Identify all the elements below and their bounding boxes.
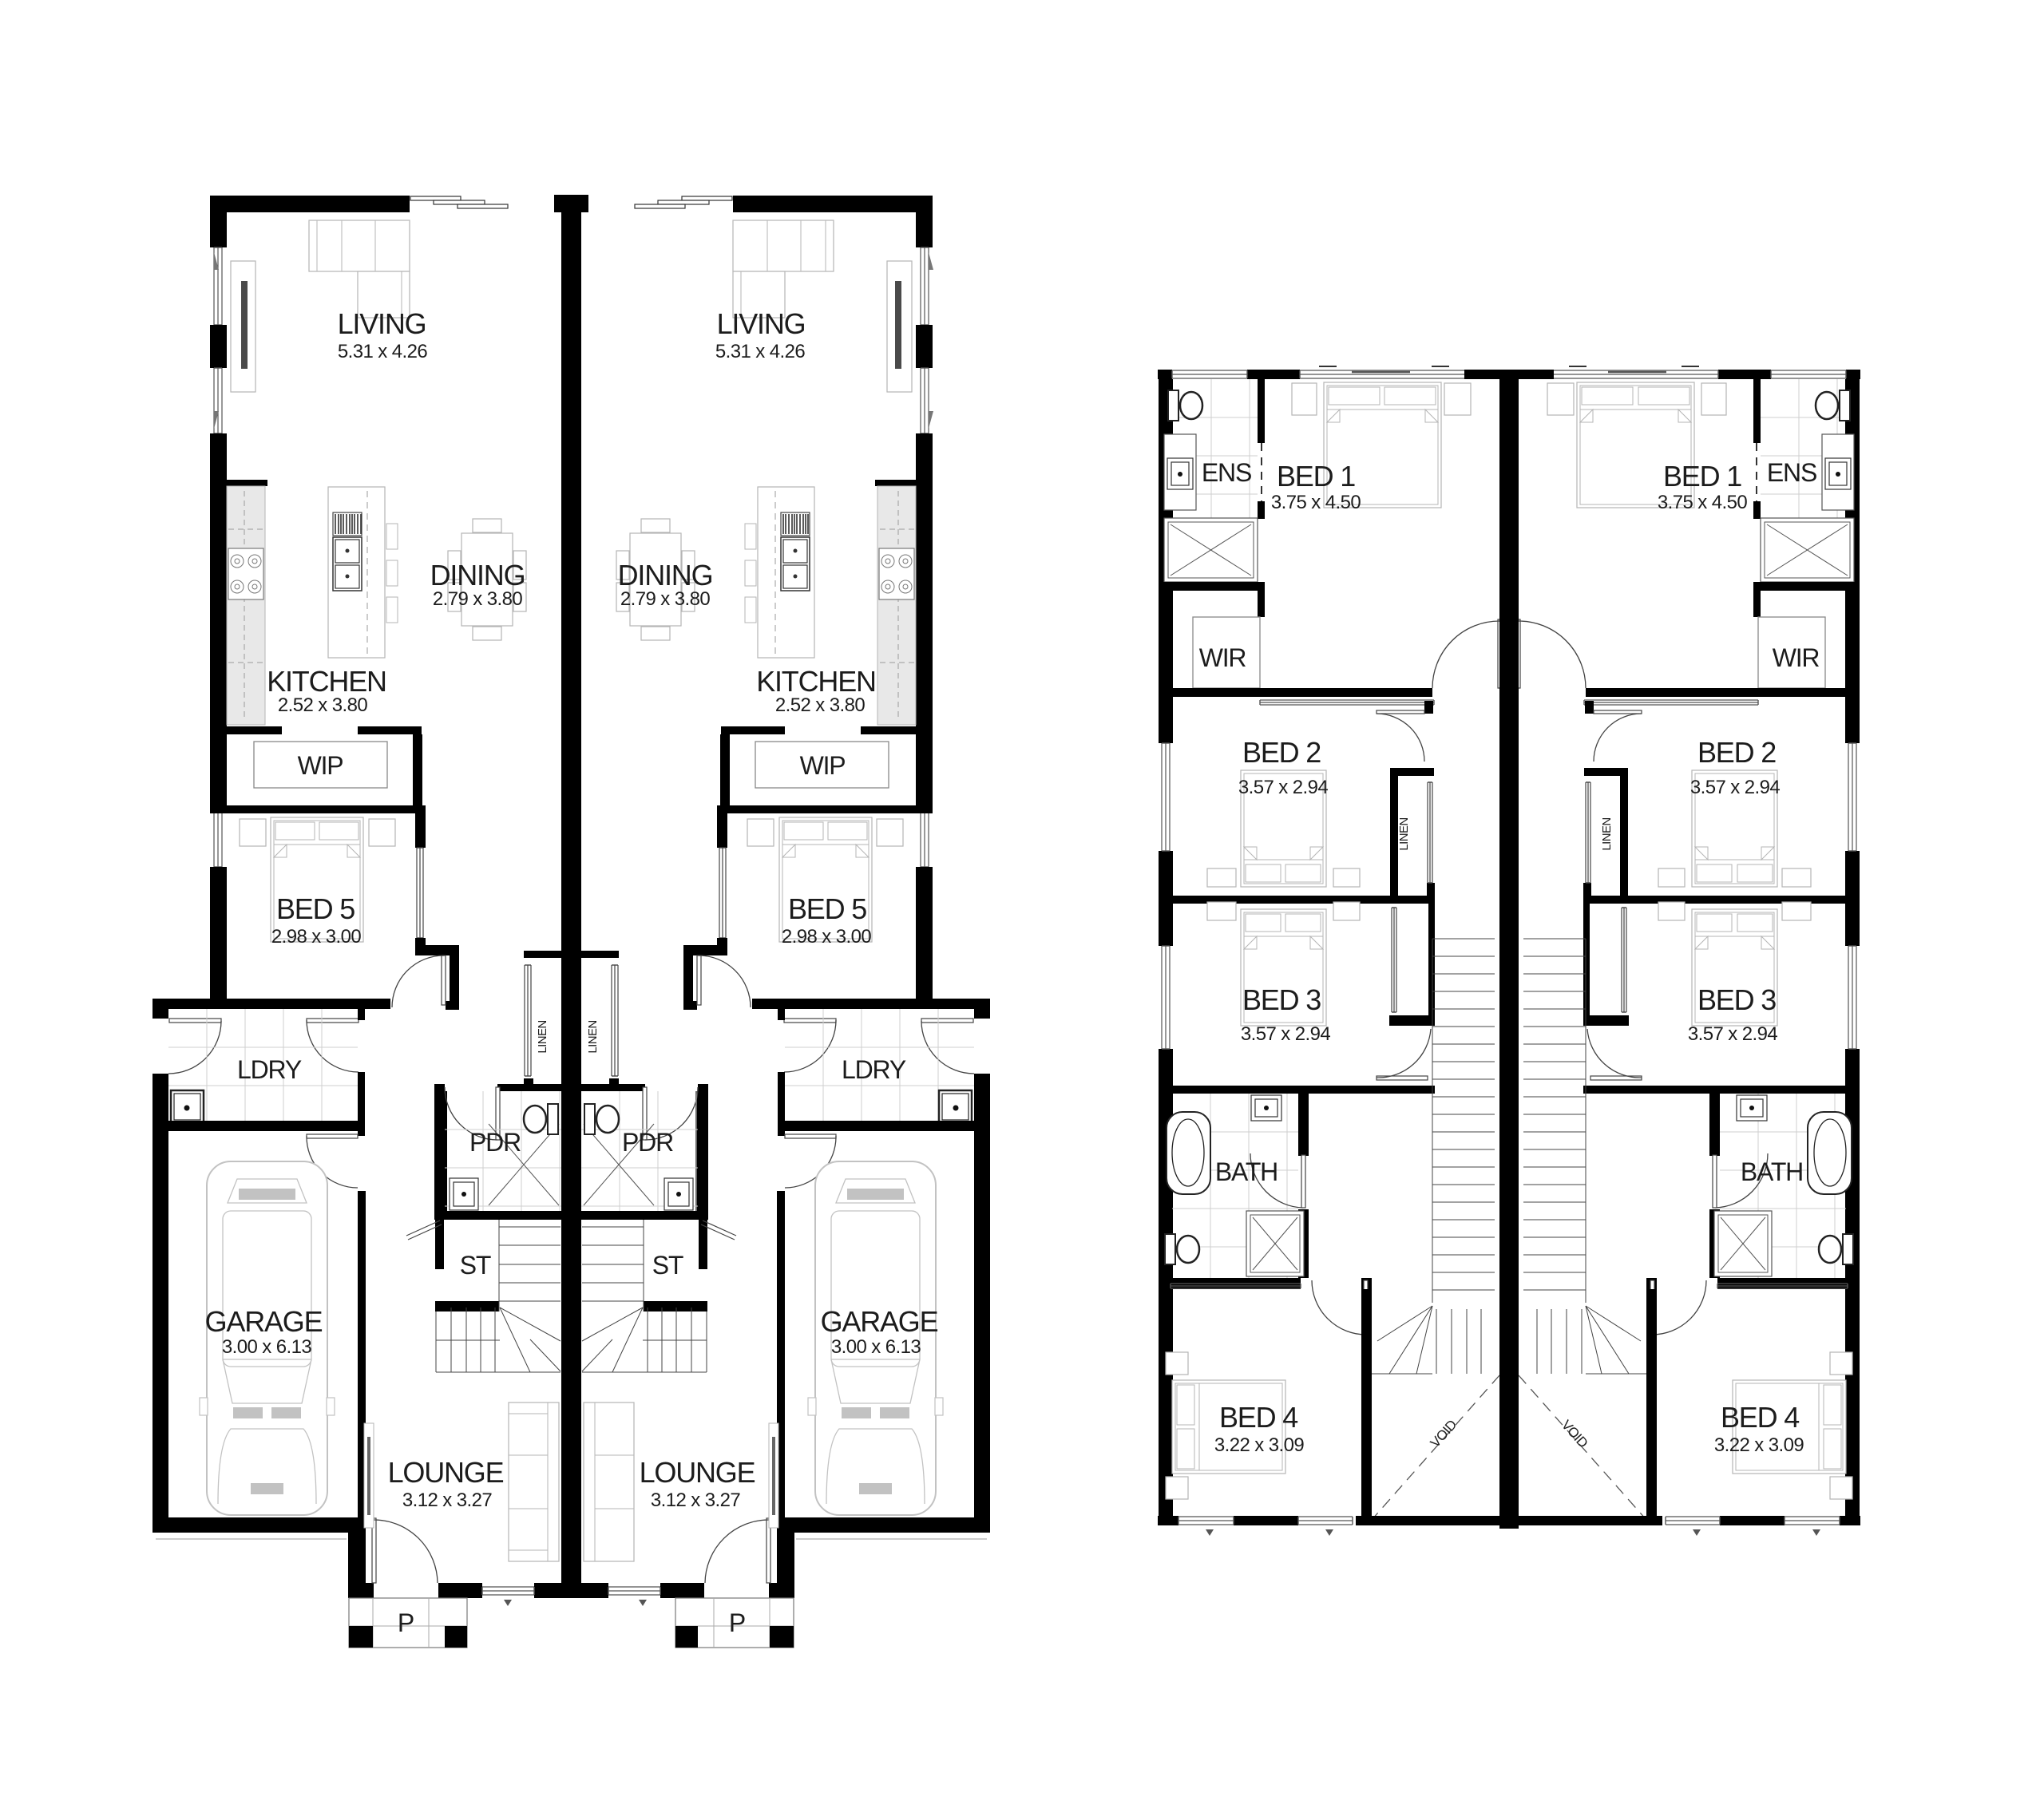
svg-text:BED 1: BED 1 [1277,460,1355,493]
svg-text:BED 2: BED 2 [1242,736,1321,769]
svg-text:3.75 x 4.50: 3.75 x 4.50 [1658,492,1747,513]
svg-text:WIP: WIP [298,751,343,780]
svg-text:DINING: DINING [430,559,525,591]
svg-text:BATH: BATH [1741,1157,1803,1186]
svg-text:BED 5: BED 5 [276,892,355,925]
svg-text:GARAGE: GARAGE [821,1305,938,1338]
svg-text:3.00 x 6.13: 3.00 x 6.13 [222,1336,311,1358]
svg-text:3.12 x 3.27: 3.12 x 3.27 [402,1490,492,1511]
svg-text:3.57 x 2.94: 3.57 x 2.94 [1238,777,1328,798]
svg-text:3.00 x 6.13: 3.00 x 6.13 [831,1336,921,1358]
svg-text:BED 5: BED 5 [788,892,866,925]
svg-text:LDRY: LDRY [237,1055,302,1084]
svg-text:3.75 x 4.50: 3.75 x 4.50 [1271,492,1361,513]
svg-text:3.57 x 2.94: 3.57 x 2.94 [1241,1023,1330,1045]
svg-text:P: P [729,1608,745,1637]
svg-text:LINEN: LINEN [1600,817,1614,850]
svg-text:ENS: ENS [1202,458,1251,487]
svg-text:3.12 x 3.27: 3.12 x 3.27 [651,1490,740,1511]
svg-text:ST: ST [460,1251,491,1280]
svg-text:2.52 x 3.80: 2.52 x 3.80 [775,694,865,716]
svg-text:GARAGE: GARAGE [205,1305,323,1338]
svg-text:ENS: ENS [1767,458,1816,487]
svg-text:WIP: WIP [800,751,846,780]
svg-text:3.57 x 2.94: 3.57 x 2.94 [1688,1023,1777,1045]
svg-text:DINING: DINING [618,559,713,591]
svg-text:KITCHEN: KITCHEN [267,665,386,698]
svg-text:BED 3: BED 3 [1242,983,1321,1016]
svg-text:2.79 x 3.80: 2.79 x 3.80 [433,588,522,610]
svg-text:LOUNGE: LOUNGE [640,1456,755,1489]
svg-text:BED 4: BED 4 [1219,1401,1297,1434]
svg-text:BED 3: BED 3 [1697,983,1776,1016]
svg-text:2.79 x 3.80: 2.79 x 3.80 [620,588,710,610]
svg-text:LOUNGE: LOUNGE [388,1456,504,1489]
svg-text:WIR: WIR [1199,643,1246,672]
svg-text:3.22 x 3.09: 3.22 x 3.09 [1714,1434,1804,1456]
svg-text:3.22 x 3.09: 3.22 x 3.09 [1214,1434,1304,1456]
svg-text:BED 1: BED 1 [1663,460,1741,493]
svg-text:ST: ST [652,1251,683,1280]
svg-text:LDRY: LDRY [842,1055,906,1084]
svg-text:P: P [398,1608,414,1637]
svg-text:BED 4: BED 4 [1721,1401,1799,1434]
svg-text:PDR: PDR [622,1128,673,1157]
svg-text:BATH: BATH [1215,1157,1277,1186]
svg-text:PDR: PDR [469,1128,521,1157]
svg-text:3.57 x 2.94: 3.57 x 2.94 [1690,777,1780,798]
svg-text:BED 2: BED 2 [1697,736,1776,769]
svg-text:LINEN: LINEN [586,1020,600,1053]
svg-text:LIVING: LIVING [338,307,426,340]
svg-text:5.31 x 4.26: 5.31 x 4.26 [715,341,805,362]
svg-text:2.98 x 3.00: 2.98 x 3.00 [782,926,871,948]
svg-text:5.31 x 4.26: 5.31 x 4.26 [338,341,427,362]
svg-text:LIVING: LIVING [717,307,806,340]
svg-text:LINEN: LINEN [536,1020,549,1053]
svg-text:2.52 x 3.80: 2.52 x 3.80 [278,694,367,716]
svg-text:LINEN: LINEN [1397,817,1411,850]
svg-text:2.98 x 3.00: 2.98 x 3.00 [271,926,361,948]
svg-text:WIR: WIR [1773,643,1820,672]
svg-text:KITCHEN: KITCHEN [756,665,876,698]
